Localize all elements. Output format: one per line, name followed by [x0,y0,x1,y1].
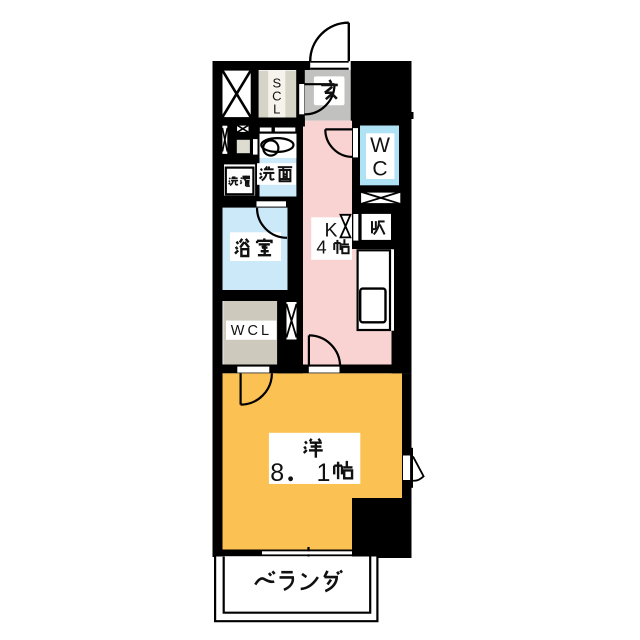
svg-text:C: C [372,158,387,181]
svg-text:WCL: WCL [231,323,272,339]
svg-text:W: W [370,134,390,157]
svg-text:8: 8 [270,459,284,487]
svg-text:4: 4 [316,236,326,257]
svg-text:L: L [273,102,280,117]
svg-text:1: 1 [317,459,331,487]
